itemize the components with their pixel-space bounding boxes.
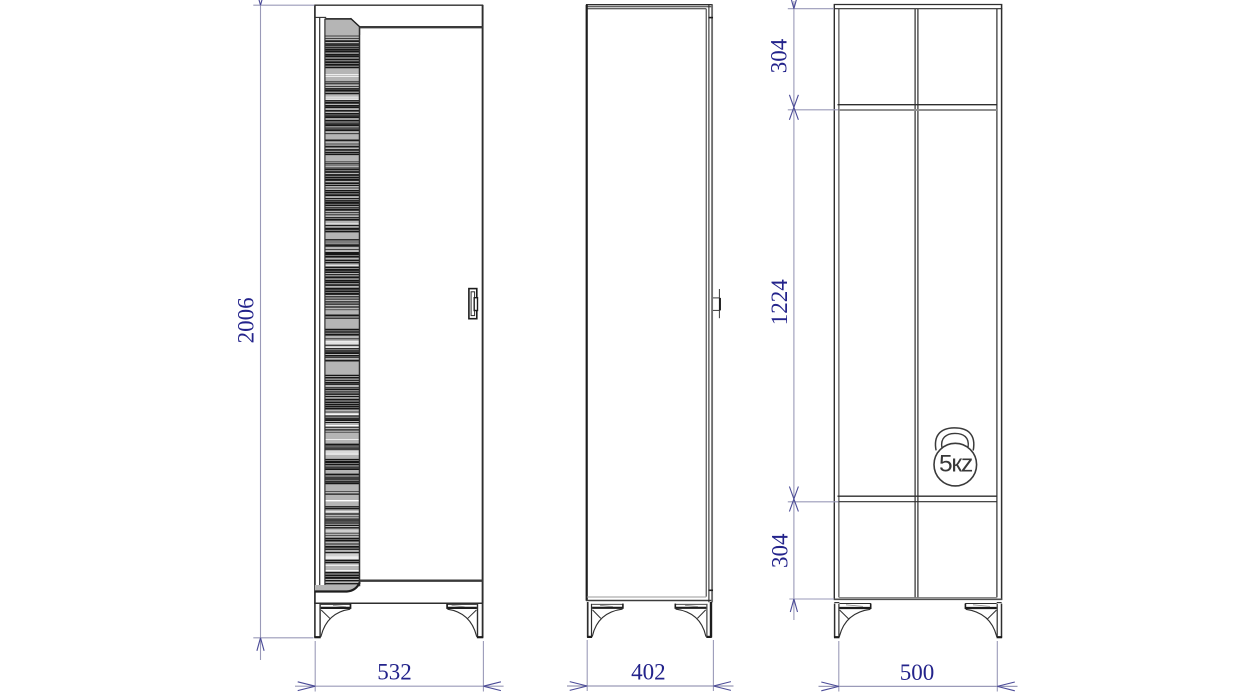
svg-text:5кz: 5кz (939, 451, 973, 478)
svg-text:2006: 2006 (233, 297, 258, 343)
svg-text:1224: 1224 (767, 279, 792, 326)
svg-text:304: 304 (767, 38, 792, 73)
svg-text:304: 304 (767, 533, 792, 568)
svg-text:402: 402 (631, 659, 666, 684)
svg-text:500: 500 (900, 660, 935, 685)
svg-text:532: 532 (377, 660, 412, 685)
